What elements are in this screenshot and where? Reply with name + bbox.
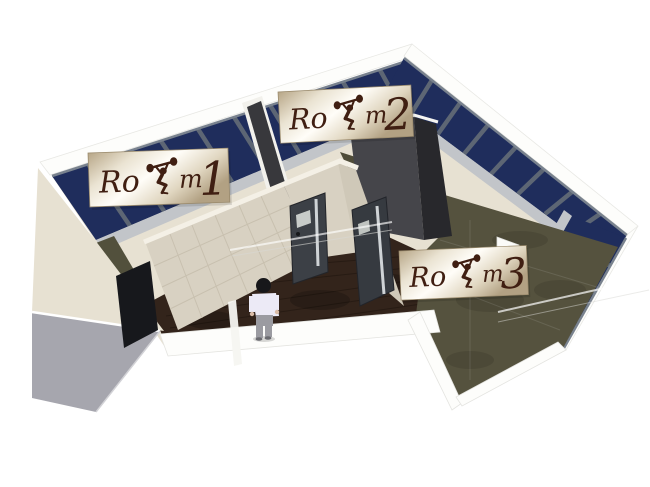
room3-label-prefix: Ro bbox=[408, 261, 447, 294]
room2-label-prefix: Ro bbox=[287, 101, 328, 136]
room3-label-number: 3 bbox=[499, 248, 528, 298]
room2-label-number: 2 bbox=[382, 89, 413, 141]
person-head bbox=[256, 278, 271, 293]
room2-label: Ro m 2 bbox=[278, 85, 416, 147]
floorplan-render: Ro m 1 Ro m 2 Ro m 3 bbox=[0, 0, 650, 487]
room1-label: Ro m 1 bbox=[88, 148, 232, 210]
room1-label-number: 1 bbox=[198, 151, 229, 206]
room3-label: Ro m 3 bbox=[399, 245, 530, 302]
room1-label-prefix: Ro bbox=[97, 164, 140, 200]
hall-door-right bbox=[352, 197, 394, 306]
floorplan-3d-scene: Ro m 1 Ro m 2 Ro m 3 bbox=[0, 0, 650, 487]
door-handle bbox=[296, 232, 300, 236]
